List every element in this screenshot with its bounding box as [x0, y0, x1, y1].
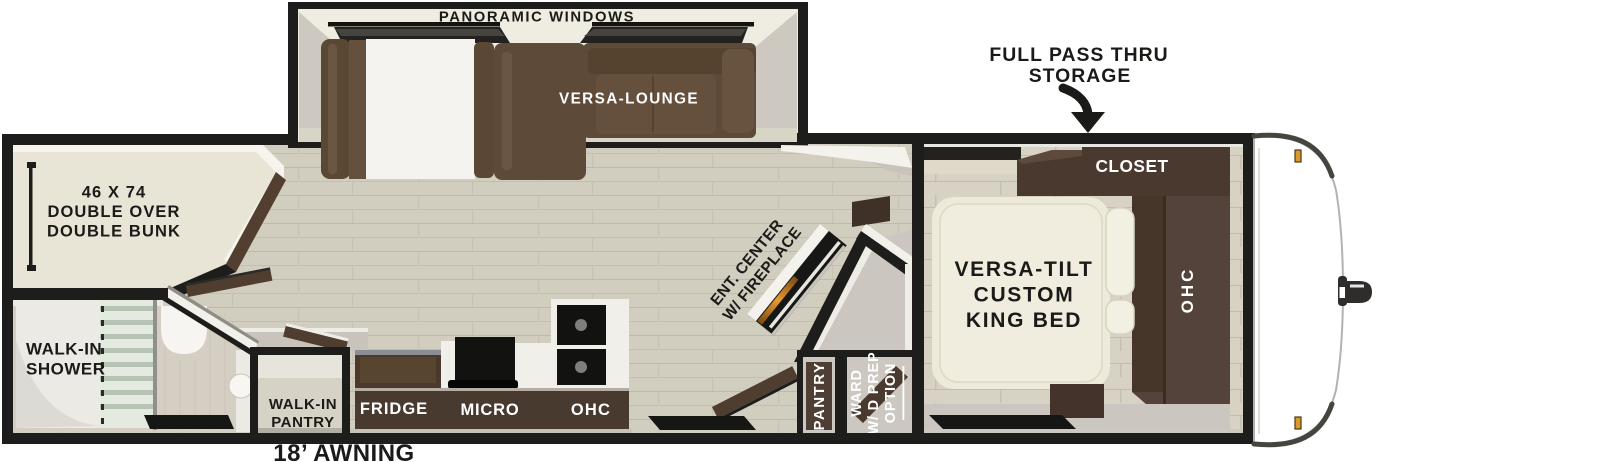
svg-text:STORAGE: STORAGE — [1029, 65, 1132, 87]
svg-text:OPTION: OPTION — [883, 363, 899, 423]
svg-text:WALK-IN: WALK-IN — [269, 396, 337, 413]
svg-text:VERSA-LOUNGE: VERSA-LOUNGE — [559, 91, 699, 108]
svg-text:DOUBLE BUNK: DOUBLE BUNK — [47, 223, 181, 241]
svg-text:PANTRY: PANTRY — [811, 362, 828, 431]
svg-text:VERSA-TILT: VERSA-TILT — [954, 258, 1093, 281]
svg-text:SHOWER: SHOWER — [26, 360, 106, 379]
svg-text:PANTRY: PANTRY — [271, 414, 335, 431]
svg-text:OHC: OHC — [571, 401, 611, 419]
svg-text:FULL PASS THRU: FULL PASS THRU — [989, 44, 1168, 66]
svg-text:PANORAMIC WINDOWS: PANORAMIC WINDOWS — [439, 10, 635, 26]
svg-text:DOUBLE OVER: DOUBLE OVER — [47, 203, 180, 221]
svg-text:CLOSET: CLOSET — [1095, 156, 1168, 176]
svg-text:CUSTOM: CUSTOM — [974, 284, 1075, 307]
svg-text:OHC: OHC — [1178, 267, 1197, 314]
svg-text:WALK-IN: WALK-IN — [26, 340, 102, 359]
svg-text:46 X 74: 46 X 74 — [82, 184, 147, 202]
svg-text:18’ AWNING: 18’ AWNING — [273, 440, 414, 462]
svg-text:FRIDGE: FRIDGE — [360, 400, 428, 418]
svg-text:KING BED: KING BED — [966, 309, 1082, 332]
svg-text:W/ D PREP: W/ D PREP — [866, 352, 882, 435]
svg-text:WARD: WARD — [849, 369, 865, 417]
svg-text:MICRO: MICRO — [461, 401, 520, 419]
